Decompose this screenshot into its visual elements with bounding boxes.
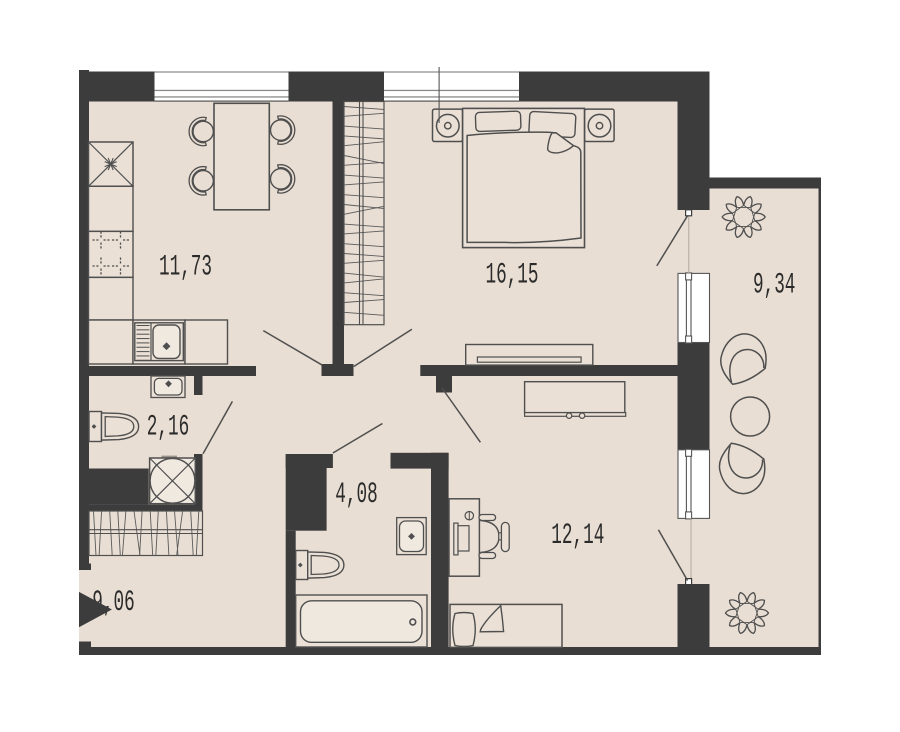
svg-text:4,08: 4,08 [335, 479, 377, 512]
svg-text:2,16: 2,16 [147, 411, 189, 444]
svg-text:9,34: 9,34 [753, 269, 795, 302]
svg-text:12,14: 12,14 [551, 520, 604, 553]
svg-text:11,73: 11,73 [159, 251, 212, 284]
svg-text:16,15: 16,15 [485, 259, 538, 292]
